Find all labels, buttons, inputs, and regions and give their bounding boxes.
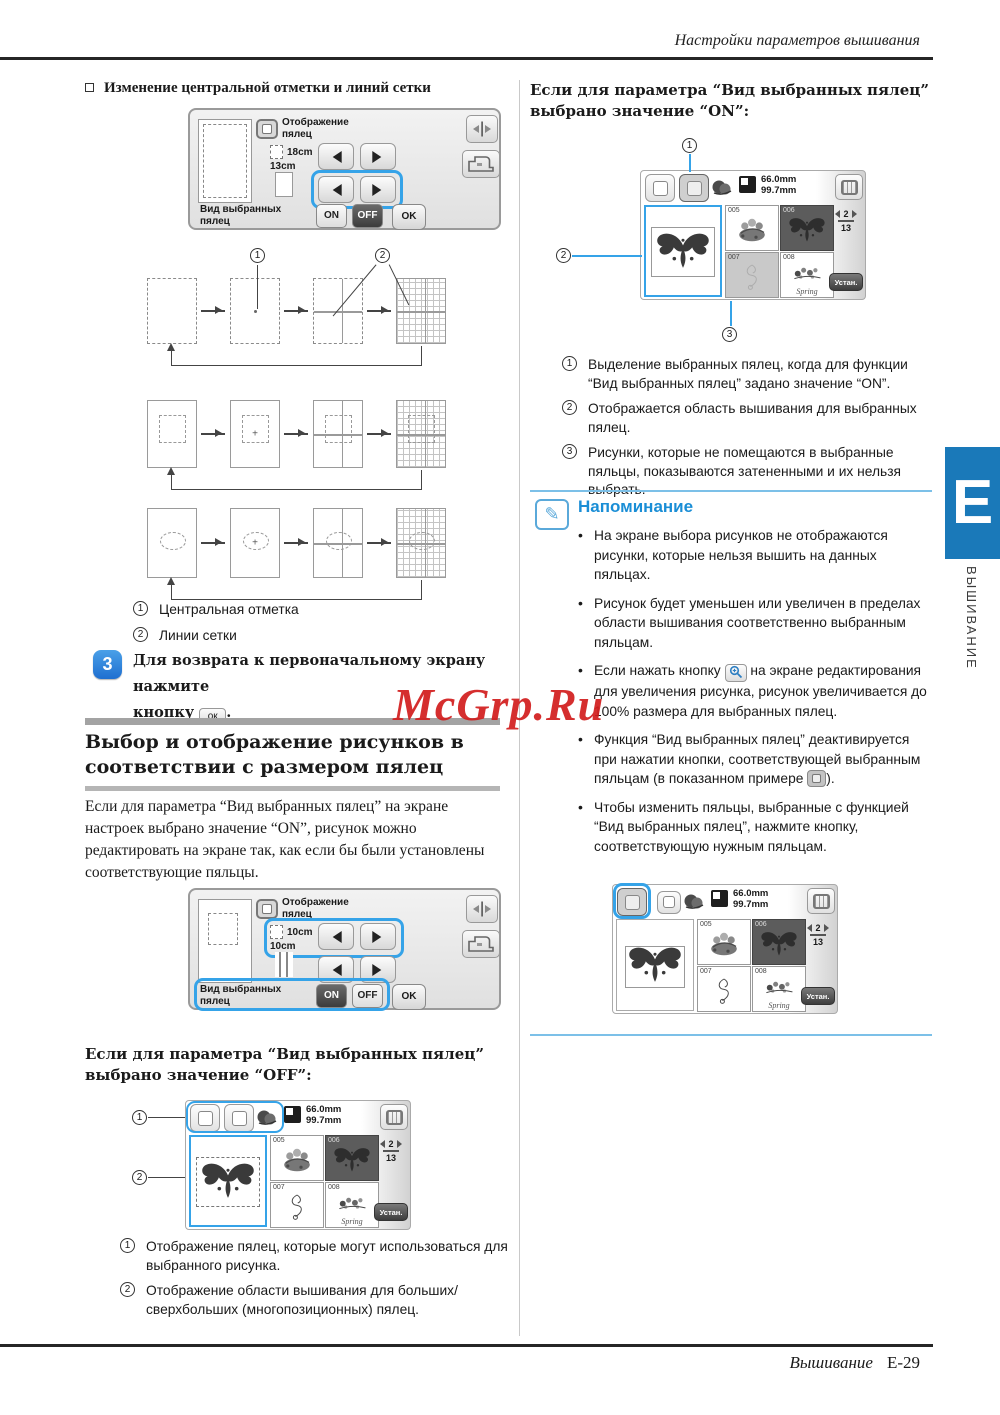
diagram-box-center-mark: [230, 278, 280, 344]
pattern-grid: 005 006 007 008Spring: [270, 1135, 380, 1228]
hoop-select-button-small[interactable]: [657, 891, 681, 914]
diagram-box-grid: [396, 278, 446, 344]
callout-line: [572, 255, 642, 257]
page-indicator: 2 13: [372, 1139, 410, 1163]
hoop-size-icon: [270, 145, 283, 159]
pattern-007-thumb: [276, 1191, 318, 1223]
on-button[interactable]: ON: [316, 204, 347, 228]
hoop-view-label: Вид выбранных пялец: [200, 204, 295, 228]
frame-display-button[interactable]: [807, 888, 835, 914]
magnify-button: [725, 664, 747, 682]
memo-rule-bottom: [530, 1034, 932, 1036]
pattern-height: 99.7mm: [306, 1115, 341, 1126]
page-current: 2: [815, 923, 820, 933]
hoop-select-button-large[interactable]: [645, 174, 675, 202]
memo-list: На экране выбора рисунков не отображаютс…: [578, 526, 934, 865]
heading-bar-bottom: [85, 786, 500, 791]
pattern-006-thumb: [331, 1144, 373, 1176]
page-next-icon[interactable]: [824, 924, 833, 932]
intro-paragraph: Если для параметра “Вид выбранных пялец”…: [85, 796, 489, 884]
on-case-heading: Если для параметра “Вид выбранных пялец”…: [530, 80, 930, 122]
diagram-box: [396, 508, 446, 578]
pattern-006-thumb: [786, 214, 828, 246]
legend-text: Выделение выбранных пялец, когда для фун…: [588, 356, 937, 393]
fraction-bar: [838, 220, 854, 222]
pattern-height: 99.7mm: [733, 899, 768, 910]
page-total: 13: [799, 937, 837, 947]
page-prev-icon[interactable]: [831, 210, 840, 218]
arrow-right: [284, 433, 308, 435]
arrow-right: [201, 542, 225, 544]
arrow-right: [284, 310, 308, 312]
dashed-area-outline: [203, 124, 247, 198]
hoop-select-button-small-selected[interactable]: [679, 174, 709, 202]
step-number-badge: 3: [93, 650, 122, 679]
embroidery-area-box: [651, 227, 715, 277]
pattern-grid: 005 006 007 008Spring: [697, 919, 807, 1012]
embroidery-area-preview: [198, 899, 252, 983]
set-button[interactable]: Устан.: [829, 273, 863, 291]
memo-bullet: Функция “Вид выбранных пялец” деактивиру…: [578, 730, 934, 789]
pattern-bounds-box: [625, 946, 685, 988]
callout-2: 2: [132, 1170, 147, 1185]
pattern-006-thumb: [758, 928, 800, 960]
page-total: 13: [372, 1153, 410, 1163]
pattern-width: 66.0mm: [761, 174, 796, 185]
pattern-preview-pane: [644, 205, 722, 297]
pattern-preview-pane: [189, 1135, 267, 1227]
frame-display-button[interactable]: [380, 1104, 408, 1130]
pattern-005-thumb: [276, 1144, 318, 1176]
pattern-size-values: 66.0mm 99.7mm: [733, 888, 768, 910]
needle-position-button[interactable]: [466, 895, 498, 923]
settings-screen-1: Отображение пялец 18cm 13cm Вид выбранны…: [188, 108, 501, 230]
legend-num: 3: [562, 444, 577, 459]
arrow-right: [367, 433, 391, 435]
section-title-line1: Выбор и отображение рисунков в: [85, 730, 500, 755]
loop-back-arrow: [171, 470, 422, 490]
page-indicator: 2 13: [827, 209, 865, 233]
frame-icon: [813, 894, 830, 909]
legend-num: 1: [120, 1238, 135, 1253]
spring-label: Spring: [326, 1217, 378, 1226]
memo-bullet-text: ).: [826, 771, 834, 786]
callout-2: 2: [556, 248, 571, 263]
legend-num: 2: [562, 400, 577, 415]
pattern-size-icon: [739, 176, 756, 193]
legend-text: Отображение области вышивания для больши…: [146, 1282, 510, 1319]
page-header-title: Настройки параметров вышивания: [675, 32, 920, 50]
machine-settings-button[interactable]: [462, 150, 500, 178]
legend-text: Отображается область вышивания для выбра…: [588, 400, 937, 437]
callout-line: [148, 1177, 185, 1178]
memo-bullet-text: Рисунок будет уменьшен или увеличен в пр…: [594, 596, 920, 650]
pattern-screen-change-hoop: 66.0mm 99.7mm 005 006 007 008Spring 2 13…: [612, 884, 838, 1014]
fraction-bar: [383, 1150, 399, 1152]
legend-num: 2: [133, 627, 148, 642]
legend-text: Линии сетки: [159, 627, 237, 646]
page-next-icon[interactable]: [852, 210, 861, 218]
pattern-size-values: 66.0mm 99.7mm: [761, 174, 796, 196]
fraction-bar: [810, 934, 826, 936]
grid-settings-diagram: 1 2 + +: [130, 248, 500, 600]
grid-style-display: [275, 952, 293, 977]
memo-rule-top: [530, 490, 932, 492]
page-prev-icon[interactable]: [803, 924, 812, 932]
page-indicator: 2 13: [799, 923, 837, 947]
page-footer: ВышиваниеE-29: [789, 1353, 920, 1373]
diagram-box-empty: [147, 278, 197, 344]
hoop-display-icon: [256, 119, 278, 139]
memo-bullet: На экране выбора рисунков не отображаютс…: [578, 526, 934, 585]
memo-bullet: Чтобы изменить пяльцы, выбранные с функц…: [578, 798, 934, 857]
memo-bullet: Рисунок будет уменьшен или увеличен в пр…: [578, 594, 934, 653]
pattern-grid: 005 006 007 008Spring: [725, 205, 835, 298]
embroidery-area-preview: [198, 119, 252, 203]
grid-style-display: [275, 172, 293, 197]
callout-line: [730, 301, 732, 326]
pattern-cell-008[interactable]: 008Spring: [752, 966, 806, 1012]
pattern-preview-pane: [616, 919, 694, 1011]
pattern-cell-008[interactable]: 008Spring: [780, 252, 834, 298]
callout-line: [689, 154, 691, 172]
pattern-width: 66.0mm: [733, 888, 768, 899]
off-legend: 1Отображение пялец, которые могут исполь…: [120, 1238, 510, 1326]
diagram-box: +: [230, 400, 280, 468]
section-tab-e: E: [945, 447, 1000, 559]
frame-icon: [841, 180, 858, 195]
needle-icon: [471, 120, 493, 138]
pattern-size-values: 66.0mm 99.7mm: [306, 1104, 341, 1126]
callout-1: 1: [682, 138, 697, 153]
pattern-cell-006[interactable]: 006: [780, 205, 834, 251]
settings-screen-2: Отображение пялец 10cm 10cm Вид выбранны…: [188, 888, 501, 1010]
spring-label: Spring: [753, 1001, 805, 1010]
loop-back-arrow: [171, 580, 422, 600]
side-vertical-label: ВЫШИВАНИЕ: [951, 566, 979, 716]
selection-dashed-box: [196, 1157, 260, 1207]
ok-button[interactable]: OK: [392, 984, 426, 1010]
highlight-hoop-button: [613, 883, 651, 919]
pattern-size-icon: [711, 890, 728, 907]
memo-title: Напоминание: [578, 497, 693, 517]
memo-bullet-text: Если нажать кнопку: [594, 663, 721, 678]
diagram-box: [147, 400, 197, 468]
pattern-005-thumb: [703, 928, 745, 960]
callout-2: 2: [375, 248, 390, 263]
spring-label: Spring: [781, 287, 833, 296]
off-button[interactable]: OFF: [352, 204, 383, 228]
pattern-007-thumb: [731, 261, 773, 293]
memo-bullet: Если нажать кнопку на экране редактирова…: [578, 661, 934, 721]
page-total: 13: [827, 223, 865, 233]
header-rule: [0, 57, 933, 60]
watermark: McGrp.Ru: [393, 678, 604, 731]
arrow-right: [201, 433, 225, 435]
legend-text: Центральная отметка: [159, 601, 299, 620]
pattern-size-icon: [284, 1106, 301, 1123]
pattern-cell-008[interactable]: 008Spring: [325, 1182, 379, 1228]
pattern-cell-007[interactable]: 007: [270, 1182, 324, 1228]
callout-1: 1: [132, 1110, 147, 1125]
pattern-007-thumb: [703, 975, 745, 1007]
hoop-button-example-icon: [807, 770, 826, 787]
set-button[interactable]: Устан.: [374, 1203, 408, 1221]
legend-num: 1: [133, 601, 148, 616]
pattern-cell-007-disabled: 007: [725, 252, 779, 298]
pattern-cell-006[interactable]: 006: [325, 1135, 379, 1181]
page-prev-icon[interactable]: [376, 1140, 385, 1148]
arrow-right: [367, 542, 391, 544]
pattern-height: 99.7mm: [761, 185, 796, 196]
pattern-screen-off: 66.0mm 99.7mm 005 006 007 008Spring 2 13…: [185, 1100, 411, 1230]
legend-num: 2: [120, 1282, 135, 1297]
pattern-cell-005[interactable]: 005: [270, 1135, 324, 1181]
footer-page-number: E-29: [887, 1353, 920, 1372]
needle-position-button[interactable]: [466, 115, 498, 143]
loop-back-arrow: [171, 346, 422, 366]
highlight-hoop-buttons: [186, 1101, 284, 1133]
footer-rule: [0, 1344, 933, 1347]
callout-3: 3: [722, 327, 737, 342]
memo-bullet-text: Чтобы изменить пяльцы, выбранные с функц…: [594, 800, 909, 854]
page-next-icon[interactable]: [397, 1140, 406, 1148]
footer-section-label: Вышивание: [789, 1353, 872, 1372]
highlight-hoop-view-row: [194, 978, 390, 1011]
pattern-cell-005[interactable]: 005: [697, 919, 751, 965]
diagram-box: [396, 400, 446, 468]
pattern-cell-005[interactable]: 005: [725, 205, 779, 251]
memo-bullet-text: На экране выбора рисунков не отображаютс…: [594, 528, 888, 582]
thread-spool-icon: [683, 893, 705, 911]
sewing-machine-icon: [467, 934, 495, 954]
sewing-machine-icon: [467, 154, 495, 174]
frame-icon: [386, 1110, 403, 1125]
callout-line: [148, 1117, 185, 1118]
hoop-display-icon: [256, 899, 278, 919]
frame-display-button[interactable]: [835, 174, 863, 200]
pattern-cell-007[interactable]: 007: [697, 966, 751, 1012]
arrow-right-button[interactable]: [360, 143, 396, 170]
memo-bullet-text: Функция “Вид выбранных пялец” деактивиру…: [594, 732, 920, 786]
arrow-left-button[interactable]: [318, 143, 354, 170]
arrow-right: [367, 310, 391, 312]
pattern-cell-006[interactable]: 006: [752, 919, 806, 965]
set-button[interactable]: Устан.: [801, 987, 835, 1005]
section-title-line2: соответствии с размером пялец: [85, 755, 500, 780]
magnifier-icon: [729, 665, 743, 679]
callout-1: 1: [250, 248, 265, 263]
pattern-005-thumb: [731, 214, 773, 246]
arrow-right: [284, 542, 308, 544]
hoop-size-top: 18cm: [287, 147, 313, 158]
off-case-heading: Если для параметра “Вид выбранных пялец”…: [85, 1044, 503, 1086]
square-bullet-icon: [85, 83, 94, 92]
arrow-right: [201, 310, 225, 312]
page-current: 2: [388, 1139, 393, 1149]
diagram-box: [313, 508, 363, 578]
legend-num: 1: [562, 356, 577, 371]
memo-pencil-icon: ✎: [535, 499, 569, 530]
diagram-box: [313, 400, 363, 468]
display-hoops-label: Отображение пялец: [282, 117, 356, 141]
topic-heading: Изменение центральной отметки и линий се…: [85, 80, 505, 97]
thread-spool-icon: [711, 179, 733, 197]
ok-button[interactable]: OK: [392, 204, 426, 230]
pattern-width: 66.0mm: [306, 1104, 341, 1115]
diagram-box: +: [230, 508, 280, 578]
on-legend: 1Выделение выбранных пялец, когда для фу…: [562, 356, 937, 507]
page-current: 2: [843, 209, 848, 219]
needle-icon: [471, 900, 493, 918]
diagram-legend: 1Центральная отметка 2Линии сетки: [133, 601, 523, 652]
callout-line: [257, 265, 258, 309]
diagram-box: [147, 508, 197, 578]
legend-text: Отображение пялец, которые могут использ…: [146, 1238, 510, 1275]
topic-heading-text: Изменение центральной отметки и линий се…: [104, 80, 431, 96]
machine-settings-button[interactable]: [462, 930, 500, 958]
dashed-hoop-outline: [208, 913, 238, 945]
hoop-size-bottom: 13cm: [270, 161, 296, 172]
pattern-screen-on: 66.0mm 99.7mm 005 006 007 008Spring 2 13…: [640, 170, 866, 300]
